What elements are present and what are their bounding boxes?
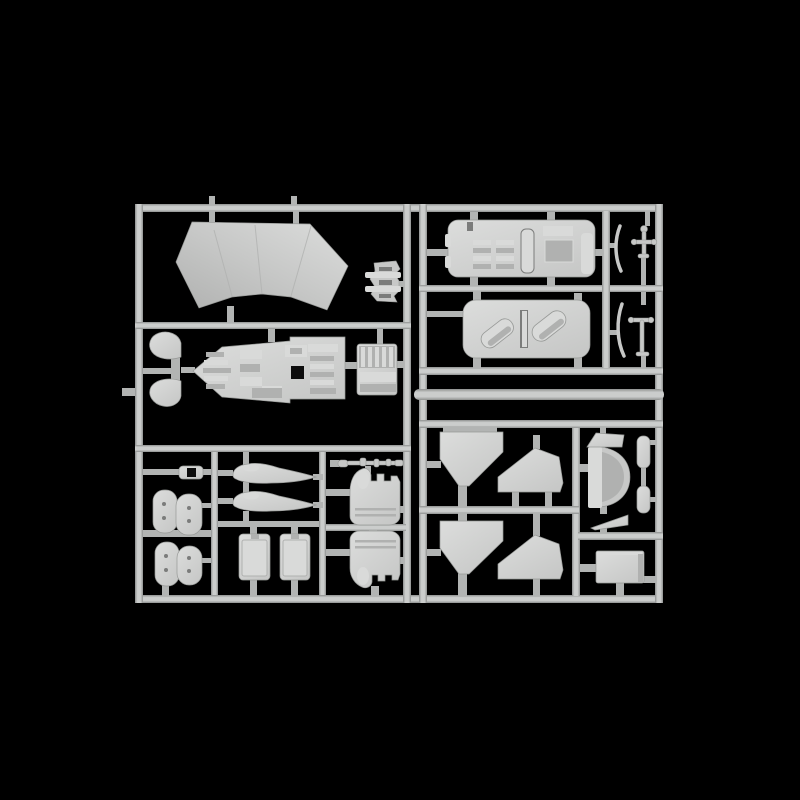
hatch-highlight (598, 552, 642, 555)
tub-rib (206, 352, 224, 357)
cushion (177, 546, 202, 585)
tub-floor-hole (291, 366, 304, 379)
injection-nub (209, 196, 215, 205)
nacelle-rib (355, 540, 396, 543)
cushion-hole (187, 569, 191, 573)
tub-console (240, 364, 260, 372)
stick-shaft (640, 320, 644, 354)
seat-rib (473, 240, 491, 245)
cushion (176, 494, 202, 535)
tub-console (240, 377, 262, 386)
seat-rib (473, 264, 491, 269)
floor-end-cap (581, 233, 593, 274)
runner-right-rail (655, 204, 663, 603)
nacelle-nose-highlight (357, 471, 369, 489)
nacelle-rib (355, 546, 396, 549)
cabin-floor-part (445, 220, 595, 277)
cushion-hole (162, 502, 166, 506)
rod-bump (360, 458, 366, 466)
tub-seat-box-inset (290, 348, 302, 354)
bracket-bar (365, 286, 401, 292)
injection-nub (291, 196, 297, 205)
console-band (360, 372, 396, 382)
tub-panel-rib (310, 372, 334, 377)
rod-end (395, 460, 403, 466)
cabin-floor-tab (445, 256, 451, 268)
bracket-slot (379, 280, 392, 285)
runner-bottom-rail (135, 595, 663, 603)
seat-rib (496, 264, 514, 269)
stick-end (651, 239, 657, 245)
stick-foot (636, 352, 649, 356)
console-rib (382, 347, 386, 367)
tub-rear-deck (252, 388, 282, 398)
runner-bl-vertical-2 (319, 452, 326, 595)
tub-rib (206, 384, 225, 389)
box-notch (291, 534, 299, 539)
side-stub (122, 388, 135, 396)
trim-strip-upper-part (637, 436, 650, 468)
console-rib (389, 347, 393, 367)
runner-mid-bar-3 (419, 420, 663, 428)
runner-br-mid (419, 506, 579, 514)
tub-console (240, 350, 262, 359)
tub-panel-rib (310, 364, 334, 369)
runner-br-right (578, 532, 663, 540)
cushion-hole (164, 554, 168, 558)
rod-end (338, 460, 348, 467)
seat-rib (473, 256, 491, 261)
spool-core (187, 468, 196, 477)
cushion-hole (187, 556, 191, 560)
access-hatch-part (596, 551, 644, 583)
bracket-bar (365, 272, 401, 278)
runner-divider-left-upper (135, 322, 411, 329)
cushion (155, 542, 179, 586)
fan-seat-lower (150, 379, 181, 406)
cushion-hole (187, 519, 191, 523)
fairing-bump (243, 493, 259, 500)
runner-bl-vertical-1 (211, 452, 218, 595)
black-backdrop (0, 0, 800, 800)
door-edge-bar (588, 447, 602, 508)
seat-rib (496, 256, 514, 261)
stick-end (631, 239, 637, 245)
runner-tr-column (602, 211, 610, 368)
equipment-box-left-part (239, 534, 270, 580)
runner-center-right (419, 204, 427, 603)
box-notch (251, 534, 259, 539)
floor-right-panel (545, 240, 573, 262)
tub-rib (204, 376, 228, 381)
seat-rib (496, 248, 514, 253)
stick-end (648, 317, 654, 323)
trim-strip-lower-part (637, 486, 650, 513)
stick-foot (638, 254, 649, 258)
fairing-bump (243, 465, 259, 472)
console-band (360, 384, 396, 392)
cushion-hole (164, 568, 168, 572)
floor-center-slot (521, 229, 534, 273)
box-lid (283, 540, 307, 576)
photo-canvas (0, 0, 800, 800)
tub-rib (204, 360, 228, 365)
console-rib (361, 347, 365, 367)
cushion-hole (162, 516, 166, 520)
hatch-body (596, 551, 644, 583)
cushion-hole (187, 506, 191, 510)
stick-end (628, 317, 634, 323)
cabin-floor-slot (467, 222, 473, 231)
runner-mid-bar-2 (414, 389, 664, 400)
rod-bump (386, 459, 391, 466)
nacelle-rib (355, 508, 396, 511)
tub-panel-rib (310, 356, 334, 361)
strip-body (637, 436, 650, 468)
runner-center-left (403, 204, 411, 603)
nacelle-rib (355, 514, 396, 517)
hatch-shade (638, 554, 643, 582)
tub-panel (308, 344, 338, 352)
console-rib (375, 347, 379, 367)
console-rib (368, 347, 372, 367)
equipment-box-right-part (280, 534, 310, 580)
seat-rib (473, 248, 491, 253)
cabin-floor-tab (445, 234, 451, 247)
side-console-part (357, 344, 397, 395)
sprue-photo (0, 0, 800, 800)
rod-bump (374, 459, 379, 467)
seat-cushion-pair-lower-part (155, 542, 202, 586)
runner-divider-left-lower (135, 445, 411, 452)
box-lid (242, 540, 267, 576)
runner-tr-divider (419, 285, 663, 292)
runner-mid-bar-1 (419, 367, 663, 375)
tub-rib (203, 368, 231, 373)
nacelle-nose-highlight (357, 567, 369, 585)
bracket-slot (379, 294, 391, 298)
roof-spine (522, 311, 527, 347)
cabin-roof-part (463, 300, 590, 358)
strip-body (637, 486, 650, 513)
cushion (153, 490, 177, 533)
seat-rib (496, 240, 514, 245)
bracket-slot (379, 267, 392, 271)
tub-panel-rib (310, 380, 334, 385)
runner-left-rail (135, 204, 143, 603)
floor-right-ledge (543, 226, 573, 236)
spool-fitting-part (179, 466, 203, 479)
tub-panel-rib (310, 388, 336, 394)
